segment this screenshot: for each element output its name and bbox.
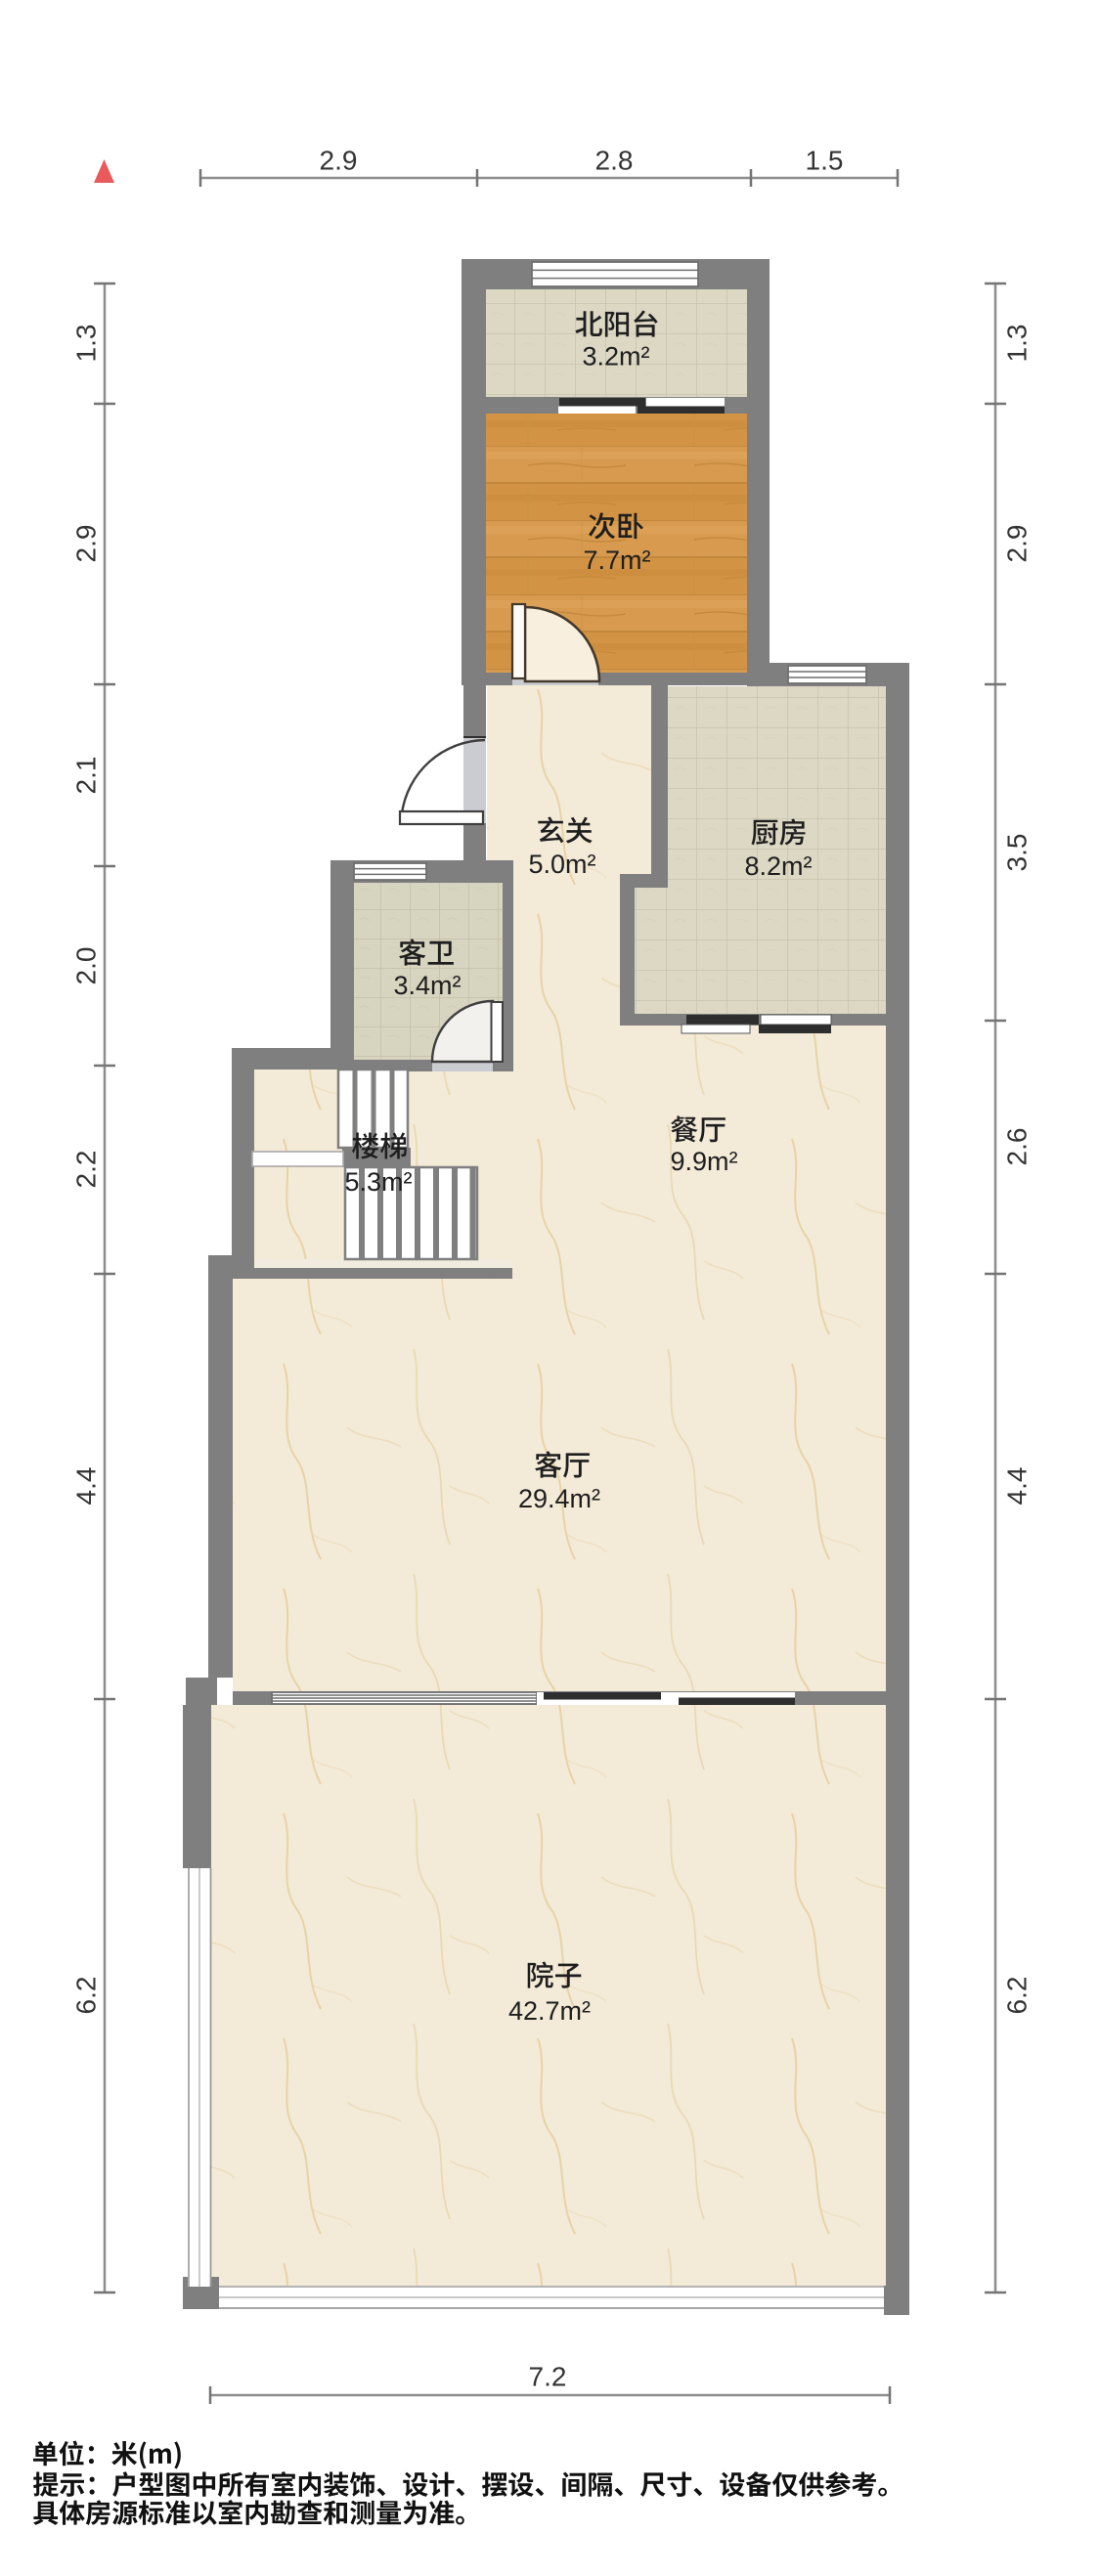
svg-text:5.0m²: 5.0m²: [528, 850, 595, 879]
svg-text:3.5: 3.5: [1002, 834, 1033, 872]
svg-text:3.4m²: 3.4m²: [393, 971, 461, 1000]
svg-text:5.3m²: 5.3m²: [344, 1167, 412, 1197]
svg-text:42.7m²: 42.7m²: [508, 1996, 591, 2026]
svg-text:7.7m²: 7.7m²: [583, 546, 650, 575]
svg-text:3.2m²: 3.2m²: [582, 342, 649, 371]
svg-text:9.9m²: 9.9m²: [670, 1147, 737, 1176]
svg-text:29.4m²: 29.4m²: [518, 1484, 600, 1513]
svg-text:2.2: 2.2: [71, 1151, 102, 1189]
svg-text:1.5: 1.5: [806, 146, 844, 176]
svg-text:2.6: 2.6: [1002, 1128, 1033, 1166]
svg-text:6.2: 6.2: [1002, 1977, 1033, 2015]
svg-text:2.9: 2.9: [1002, 525, 1033, 563]
svg-text:2.1: 2.1: [71, 757, 102, 795]
svg-text:7.2: 7.2: [529, 2362, 567, 2392]
svg-text:2.9: 2.9: [71, 525, 102, 563]
svg-text:4.4: 4.4: [71, 1467, 102, 1506]
svg-text:6.2: 6.2: [71, 1977, 102, 2015]
svg-text:2.8: 2.8: [595, 146, 634, 176]
svg-text:2.0: 2.0: [71, 947, 102, 985]
svg-text:4.4: 4.4: [1002, 1467, 1033, 1506]
svg-text:2.9: 2.9: [320, 146, 358, 176]
svg-text:8.2m²: 8.2m²: [744, 851, 812, 881]
svg-text:1.3: 1.3: [71, 325, 102, 363]
svg-text:1.3: 1.3: [1002, 325, 1033, 363]
